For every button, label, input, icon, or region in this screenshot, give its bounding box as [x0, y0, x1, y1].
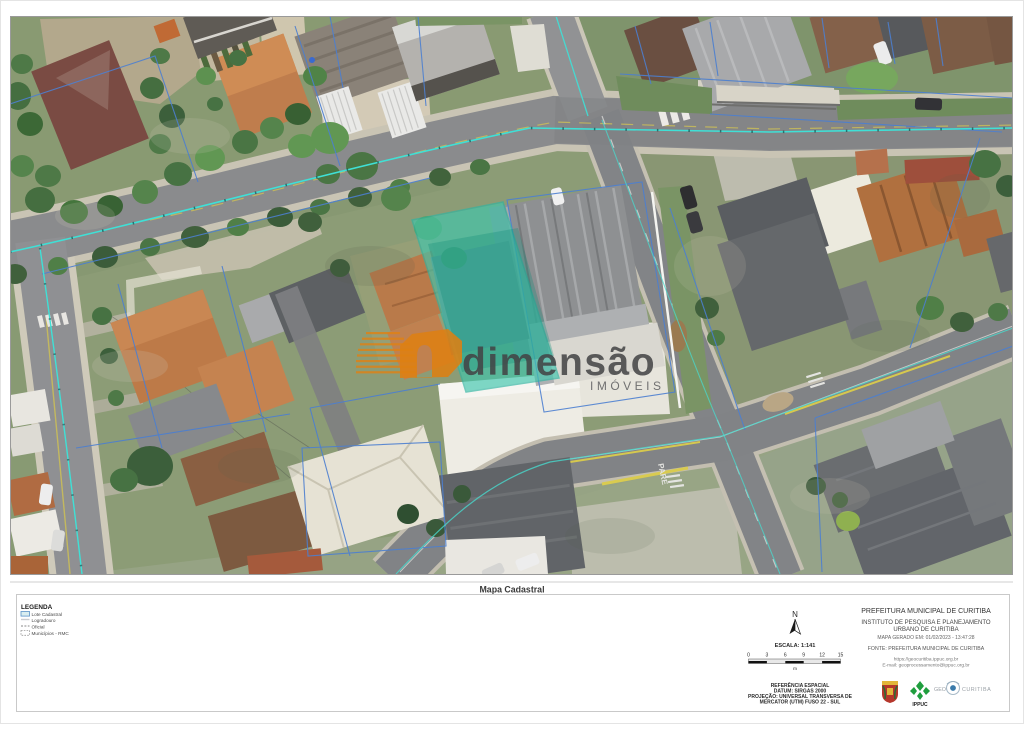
svg-text:Oficial: Oficial — [32, 624, 45, 629]
svg-text:N: N — [792, 610, 798, 619]
svg-text:INSTITUTO DE PESQUISA E PLANEJ: INSTITUTO DE PESQUISA E PLANEJAMENTO — [861, 620, 990, 626]
svg-text:CURITIBA: CURITIBA — [962, 687, 991, 693]
svg-text:12: 12 — [819, 653, 825, 659]
svg-text:IMÓVEIS: IMÓVEIS — [590, 378, 665, 393]
svg-text:URBANO DE CURITIBA: URBANO DE CURITIBA — [893, 627, 958, 633]
svg-text:3: 3 — [766, 653, 769, 659]
svg-text:LEGENDA: LEGENDA — [21, 604, 53, 611]
svg-text:Municípios - RMC: Municípios - RMC — [32, 631, 70, 636]
svg-text:Lote Cadastral: Lote Cadastral — [32, 612, 63, 617]
svg-text:dimensão: dimensão — [462, 341, 656, 384]
svg-text:PREFEITURA MUNICIPAL DE CURITI: PREFEITURA MUNICIPAL DE CURITIBA — [861, 608, 991, 615]
svg-text:GEO: GEO — [934, 687, 946, 693]
svg-text:0: 0 — [747, 653, 750, 659]
svg-text:MERCATOR (UTM) FUSO 22 - SUL: MERCATOR (UTM) FUSO 22 - SUL — [760, 700, 841, 706]
svg-text:Mapa Cadastral: Mapa Cadastral — [479, 585, 544, 595]
svg-text:15: 15 — [838, 653, 844, 659]
svg-text:IPPUC: IPPUC — [912, 702, 928, 708]
svg-text:https://geocuritiba.ippuc.org.: https://geocuritiba.ippuc.org.br — [894, 657, 959, 663]
svg-text:6: 6 — [784, 653, 787, 659]
svg-text:ESCALA: 1:141: ESCALA: 1:141 — [775, 643, 816, 649]
svg-text:9: 9 — [802, 653, 805, 659]
svg-text:FONTE: PREFEITURA MUNICIPAL DE: FONTE: PREFEITURA MUNICIPAL DE CURITIBA — [868, 646, 985, 652]
svg-text:E-mail: geoprocessamento@ippuc: E-mail: geoprocessamento@ippuc.org.br — [882, 663, 970, 669]
svg-text:MAPA GERADO EM: 01/02/2023 - 1: MAPA GERADO EM: 01/02/2023 - 13:47:28 — [877, 635, 974, 641]
svg-text:Logradouro: Logradouro — [32, 618, 56, 623]
svg-text:m: m — [793, 666, 797, 671]
